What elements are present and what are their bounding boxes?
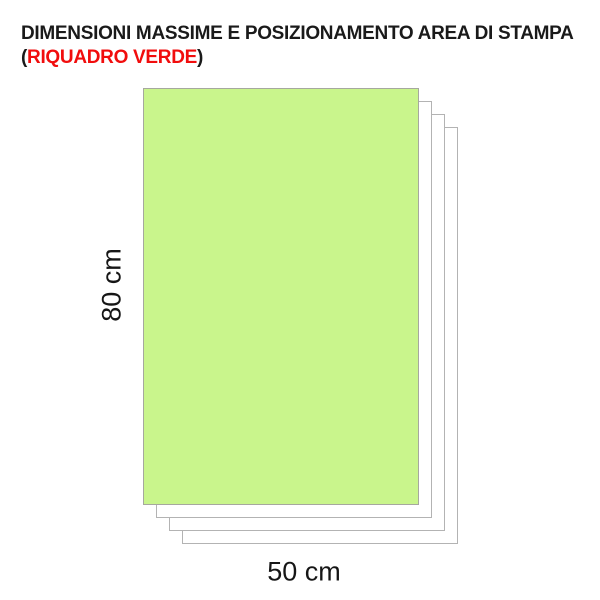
subtitle-highlight: RIQUADRO VERDE <box>27 47 197 68</box>
height-dimension-label: 80 cm <box>97 248 128 322</box>
print-area-diagram-page: DIMENSIONI MASSIME E POSIZIONAMENTO AREA… <box>0 0 600 600</box>
print-area-rectangle <box>143 88 419 505</box>
title-block: DIMENSIONI MASSIME E POSIZIONAMENTO AREA… <box>21 22 574 70</box>
subtitle-close-paren: ) <box>197 47 203 68</box>
width-dimension-label: 50 cm <box>267 557 341 588</box>
diagram-subtitle: (RIQUADRO VERDE) <box>21 46 574 70</box>
diagram-title: DIMENSIONI MASSIME E POSIZIONAMENTO AREA… <box>21 22 574 46</box>
